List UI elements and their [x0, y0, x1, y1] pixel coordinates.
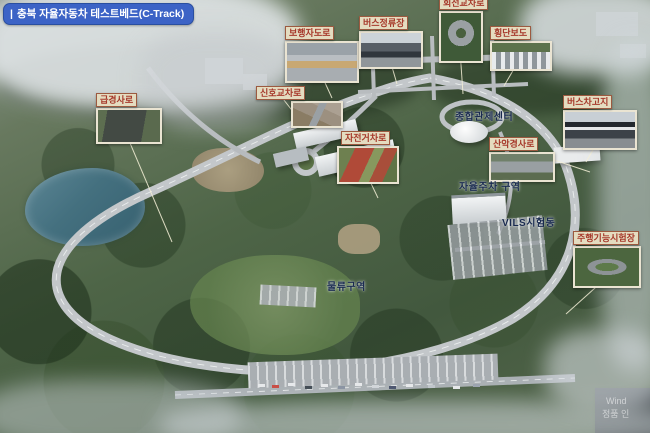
bus-stop-label: 버스정류장: [359, 16, 408, 30]
callout-bicycle-lane: 자전거차로: [337, 128, 399, 184]
callout-pedestrian-road: 보행자도로: [285, 23, 359, 83]
callout-bus-stop: 버스정류장: [359, 13, 423, 69]
aerial-map: 급경사로 보행자도로 버스정류장 회전교차로 횡단보도 신호교차로 자전거차로 …: [0, 0, 650, 433]
pedestrian-road-label: 보행자도로: [285, 26, 334, 40]
steep-slope-label: 급경사로: [96, 93, 137, 107]
signal-intersection-photo: [291, 101, 343, 128]
logistics-area-label: 물류구역: [327, 278, 366, 293]
bicycle-lane-photo: [337, 146, 399, 184]
vils-building-label: VILS시험동: [502, 214, 555, 229]
callout-roundabout: 회전교차로: [439, 0, 488, 63]
steep-slope-photo: [96, 108, 162, 144]
crosswalk-label: 횡단보도: [490, 26, 531, 40]
callout-mountain-slope: 산악경사로: [489, 134, 555, 182]
title-badge: |충북 자율자동차 테스트베드(C-Track): [3, 3, 194, 25]
page-title: 충북 자율자동차 테스트베드(C-Track): [17, 8, 184, 20]
callout-signal-intersection: 신호교차로: [256, 83, 343, 128]
callout-bus-depot: 버스차고지: [563, 92, 637, 150]
roundabout-label: 회전교차로: [439, 0, 488, 10]
pedestrian-road-photo: [285, 41, 359, 83]
driving-test-track-photo: [573, 246, 641, 288]
roundabout-photo: [439, 11, 483, 63]
autonomous-parking-label: 자율주차 구역: [459, 178, 520, 193]
watermark-line2: 정품 인: [602, 407, 629, 420]
bicycle-lane-label: 자전거차로: [341, 131, 390, 145]
watermark-line1: Wind: [606, 396, 627, 406]
signal-intersection-label: 신호교차로: [256, 86, 305, 100]
callout-steep-slope: 급경사로: [96, 90, 162, 144]
callout-crosswalk: 횡단보도: [490, 23, 552, 71]
bus-depot-photo: [563, 110, 637, 150]
crosswalk-photo: [490, 41, 552, 71]
title-bar-glyph: |: [10, 8, 13, 20]
callout-driving-test-track: 주행기능시험장: [573, 228, 641, 288]
bus-depot-label: 버스차고지: [563, 95, 612, 109]
control-center-label: 종합관제센터: [455, 108, 513, 123]
driving-test-track-label: 주행기능시험장: [573, 231, 639, 245]
bus-stop-photo: [359, 31, 423, 69]
mountain-slope-label: 산악경사로: [489, 137, 538, 151]
